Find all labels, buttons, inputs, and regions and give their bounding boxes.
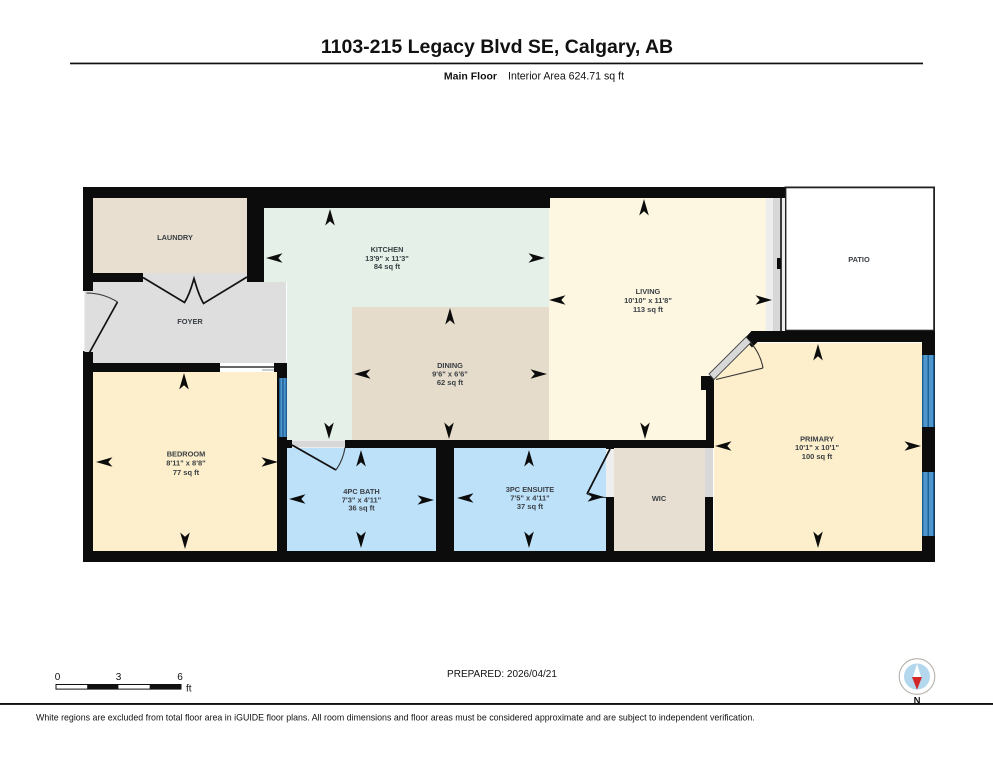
svg-text:113 sq ft: 113 sq ft [633, 305, 664, 314]
svg-text:1103-215 Legacy Blvd SE, Calga: 1103-215 Legacy Blvd SE, Calgary, AB [321, 36, 673, 58]
svg-text:6: 6 [177, 672, 183, 683]
svg-text:PRIMARY: PRIMARY [800, 434, 834, 443]
svg-text:10'10" x 11'8": 10'10" x 11'8" [624, 296, 672, 305]
svg-text:Main Floor: Main Floor [444, 71, 497, 83]
svg-text:3: 3 [116, 672, 122, 683]
svg-text:84 sq ft: 84 sq ft [374, 262, 401, 271]
svg-text:KITCHEN: KITCHEN [371, 245, 404, 254]
svg-text:PREPARED: 2026/04/21: PREPARED: 2026/04/21 [447, 669, 557, 680]
svg-text:37 sq ft: 37 sq ft [517, 502, 544, 511]
svg-text:0: 0 [55, 672, 61, 683]
svg-text:LAUNDRY: LAUNDRY [157, 233, 193, 242]
svg-text:ft: ft [186, 684, 192, 695]
svg-text:100 sq ft: 100 sq ft [802, 452, 833, 461]
svg-text:FOYER: FOYER [177, 317, 203, 326]
svg-text:36 sq ft: 36 sq ft [348, 504, 375, 513]
svg-text:PATIO: PATIO [848, 255, 870, 264]
svg-text:White regions are excluded fro: White regions are excluded from total fl… [36, 713, 755, 723]
svg-text:BEDROOM: BEDROOM [167, 450, 206, 459]
svg-text:10'1" x 10'1": 10'1" x 10'1" [795, 443, 839, 452]
svg-text:77 sq ft: 77 sq ft [173, 468, 200, 477]
svg-text:LIVING: LIVING [636, 287, 661, 296]
svg-text:62 sq ft: 62 sq ft [437, 378, 464, 387]
svg-text:WIC: WIC [652, 494, 667, 503]
svg-text:Interior Area 624.71 sq ft: Interior Area 624.71 sq ft [508, 71, 624, 83]
svg-text:8'11" x 8'8": 8'11" x 8'8" [166, 459, 206, 468]
